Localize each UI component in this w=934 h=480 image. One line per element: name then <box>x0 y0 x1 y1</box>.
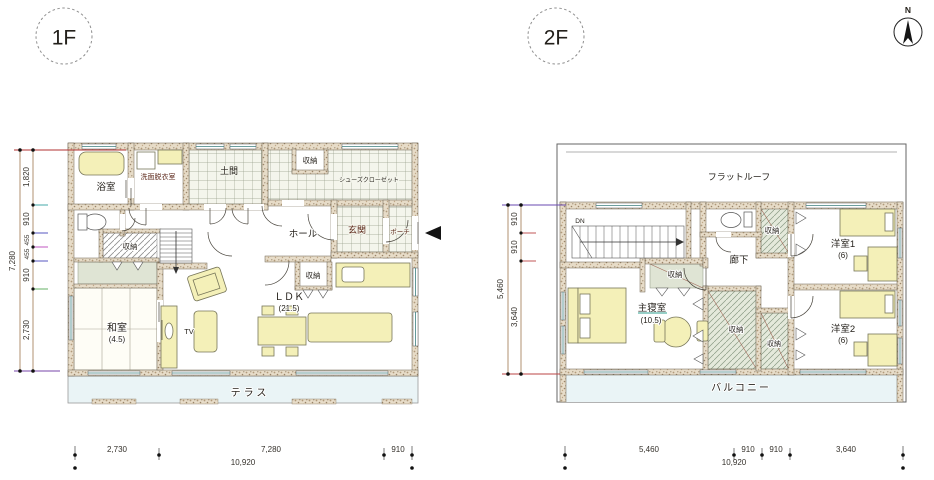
washbasin <box>158 150 182 164</box>
room-label-porch: ポーチ <box>390 228 410 236</box>
dim-1f-left-seg-3: 455 <box>24 248 31 259</box>
dim-2f-left-seg-1: 910 <box>510 240 519 254</box>
room-label-dn: DN <box>575 218 585 225</box>
floor2-label: 2F <box>544 26 569 49</box>
master-bed-headboard <box>568 288 578 343</box>
dim-1f-left-seg-4: 910 <box>22 268 31 282</box>
bed1-pillow <box>885 213 893 231</box>
armchair <box>187 266 227 301</box>
dim-2f-left-total: 5,460 <box>496 278 505 299</box>
room-label-washitsu: 和室 <box>107 321 127 334</box>
dim-2f-bottom-seg-0: 5,460 <box>639 445 660 454</box>
dim-1f-bottom-total: 10,920 <box>231 458 256 467</box>
room-label-ldk-size: (21.5) <box>279 304 300 313</box>
toilet2-tank <box>744 212 752 227</box>
chair2 <box>854 342 867 356</box>
dim-2f-bottom-seg-3: 3,640 <box>836 445 857 454</box>
room-label-washroom: 洗面脱衣室 <box>141 172 176 181</box>
tv-icon <box>165 323 173 339</box>
toilet-tank <box>78 214 87 230</box>
room-label-master-size: (10.5) <box>641 316 662 325</box>
dim-1f-bottom-seg-0: 2,730 <box>107 445 128 454</box>
floor1-badge: 1F <box>36 8 92 64</box>
room-label-storage-c2: 収納 <box>767 339 781 348</box>
entrance-arrow-icon <box>425 226 441 240</box>
floor2-plan: フラットルーフ DN 収納 洋室1 (6) 廊下 収納 主寝室 (10.5) 収… <box>557 144 906 402</box>
dim-1f-left-seg-5: 2,730 <box>22 319 31 340</box>
room-label-terrace: テラス <box>231 387 270 399</box>
desk1 <box>868 247 897 281</box>
dim-2f-bottom-total: 10,920 <box>722 458 747 467</box>
toilet2-bowl <box>721 213 741 228</box>
kitchen-sink <box>342 267 364 282</box>
dim-1f-bottom-seg-2: 910 <box>391 445 405 454</box>
floor1-plan: 浴室 洗面脱衣室 土間 収納 シューズクローゼット ホール 玄関 ポーチ 収納 … <box>68 143 441 404</box>
floor2-badge: 2F <box>528 8 584 64</box>
washing-machine <box>137 152 155 169</box>
room-label-storage-top-2f: 収納 <box>765 225 780 235</box>
compass-north-label: N <box>905 5 911 15</box>
room-label-shoe-closet: シューズクローゼット <box>339 176 399 184</box>
room-label-master-bedroom: 主寝室 <box>638 302 667 314</box>
dining-table <box>258 317 306 345</box>
room-label-storage-c1: 収納 <box>729 324 744 334</box>
dim-1f-bottom-seg-1: 7,280 <box>261 445 282 454</box>
floorplan-canvas: 1F 2F N <box>0 0 934 480</box>
room-label-bedroom1-size: (6) <box>838 251 848 260</box>
island-counter <box>308 313 392 342</box>
floorplan-page: 1F 2F N <box>0 0 934 480</box>
dim-2f-left-seg-0: 910 <box>510 212 519 226</box>
dim-1f-left-seg-0: 1,820 <box>22 166 31 187</box>
dim-2f-bottom-seg-2: 910 <box>769 445 783 454</box>
dim-1f-left-total: 7,280 <box>8 250 17 271</box>
compass-icon: N <box>894 5 922 46</box>
room-label-storage-top: 収納 <box>303 155 318 165</box>
room-label-hall: ホール <box>289 229 318 240</box>
room-label-balcony: バルコニー <box>711 382 771 394</box>
floor1-label: 1F <box>52 26 77 49</box>
room-label-washitsu-size: (4.5) <box>109 335 126 344</box>
dim-2f-bottom-seg-1: 910 <box>741 445 755 454</box>
bed2-pillow <box>885 295 893 313</box>
room-label-storage-master: 収納 <box>668 269 683 279</box>
room-label-bedroom1: 洋室1 <box>831 238 855 250</box>
dim-1f-left-seg-1: 910 <box>22 212 31 226</box>
master-pillow-1 <box>580 294 590 314</box>
dim-1f-left-seg-2: 455 <box>24 234 31 245</box>
chair1 <box>854 256 867 271</box>
room-label-storage-center: 収納 <box>306 270 321 280</box>
master-pillow-2 <box>580 318 590 338</box>
room-label-flat-roof: フラットルーフ <box>708 172 770 182</box>
room-label-bath: 浴室 <box>96 181 115 193</box>
desk2 <box>868 334 897 366</box>
room-label-bedroom2: 洋室2 <box>831 323 855 335</box>
sofa <box>194 311 217 352</box>
round-table <box>661 317 691 347</box>
bathtub <box>79 152 124 175</box>
floor2-stairs <box>572 226 684 258</box>
room-label-ldk: ＬＤＫ <box>274 292 304 303</box>
room-label-storage-left: 収納 <box>123 241 138 251</box>
room-label-doma: 土間 <box>220 165 238 176</box>
room-label-corridor: 廊下 <box>729 254 748 266</box>
room-label-bedroom2-size: (6) <box>838 336 848 345</box>
dim-2f-left-seg-2: 3,640 <box>510 306 519 327</box>
room-label-tv: TV <box>184 327 194 336</box>
room-label-entrance: 玄関 <box>348 224 366 235</box>
